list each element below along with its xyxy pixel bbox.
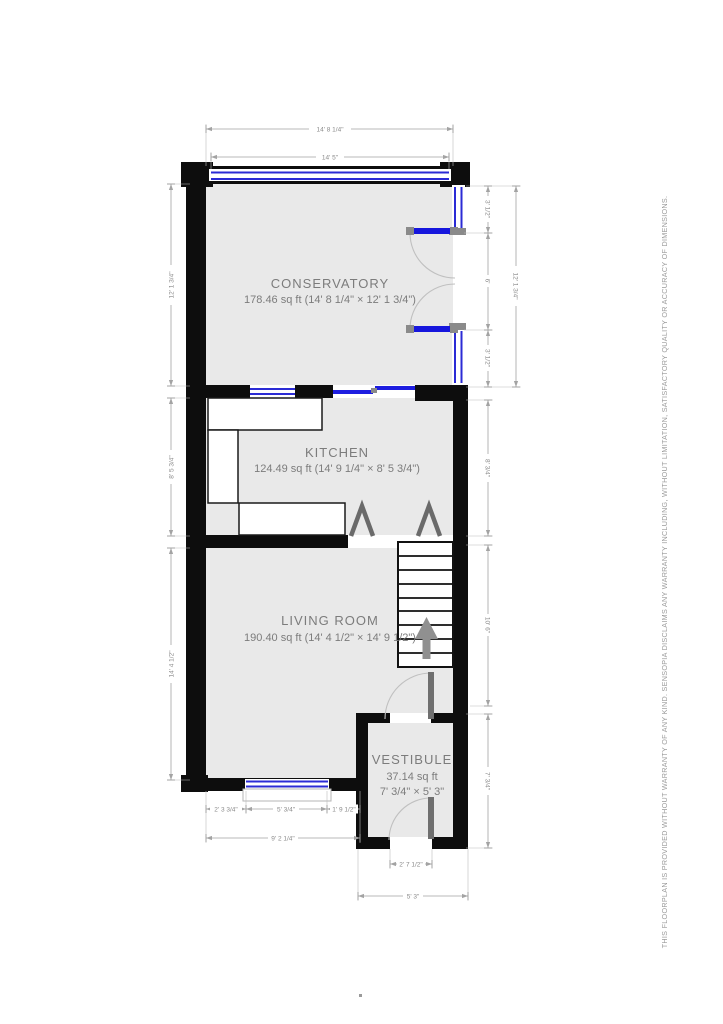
window-right-upper-icon [452,185,465,233]
dim-conservatory-right-upper-label: 3' 1/2" [484,200,491,219]
disclaimer-text: THIS FLOORPLAN IS PROVIDED WITHOUT WARRA… [660,196,669,949]
sliding-door-panel-left [333,390,373,394]
conservatory-area: 178.46 sq ft (14' 8 1/4" × 12' 1 3/4") [244,294,416,306]
counter-top [208,398,322,430]
dim-bottom-overall: 9' 2 1/4" [268,834,298,843]
dim-conservatory-right-overall-label: 12' 1 3/4" [512,272,519,300]
wall-vestibule-top-right [431,713,468,723]
dim-conservatory-left-label: 12' 1 3/4" [168,271,175,299]
window-right-lower-icon [452,328,465,385]
door-hinge-upper [450,227,458,235]
door-end-upper [406,227,414,235]
dim-kitchen-left-label: 8' 5 3/4" [168,455,175,479]
dim-conservatory-right-overall: 12' 1 3/4" [511,266,521,306]
wall-vestibule-left [356,713,368,849]
living-room-area: 190.40 sq ft (14' 4 1/2" × 14' 9 1/2") [244,632,416,644]
dim-bottom-right-seg-label: 1' 9 1/2" [332,806,356,813]
door-leaf-upper [410,228,455,234]
dim-top-overall: 14' 8 1/4" [309,124,351,134]
wall-left [186,166,206,791]
staircase [398,542,453,667]
floorplan-drawing: 14' 8 1/4" 14' 5" 2' 3 3/4" 5' 3/4" 1' 9… [0,0,723,1024]
dim-top-window-label: 14' 5" [322,154,339,161]
dim-vestibule-right-label: 7' 3/4" [484,772,491,791]
conservatory-name: CONSERVATORY [271,276,389,291]
counter-left [208,430,238,503]
dim-living-left: 14' 4 1/2" [166,645,176,683]
door-end-lower [406,325,414,333]
sliding-door-panel-right [375,386,415,390]
floorplan-page: 14' 8 1/4" 14' 5" 2' 3 3/4" 5' 3/4" 1' 9… [0,0,723,1024]
wall-conservatory-kitchen-a [186,385,250,398]
kitchen-name: KITCHEN [305,445,369,460]
dim-conservatory-right-lower-label: 3' 1/2" [484,349,491,368]
counter-bottom [239,503,345,535]
page-dot [359,994,362,997]
window-kitchen-icon [250,386,295,397]
door-leaf-lower [410,326,455,332]
wall-conservatory-kitchen-b [295,385,333,398]
dim-vestibule-right: 7' 3/4" [483,767,493,795]
disclaimer-container: THIS FLOORPLAN IS PROVIDED WITHOUT WARRA… [660,196,669,949]
wall-right [453,385,468,849]
sliding-door-icon [333,385,415,398]
dim-conservatory-right-upper: 3' 1/2" [483,196,493,222]
wall-corner-bottom-left [181,775,208,792]
sliding-door-overlap [371,388,377,393]
dim-front-door-label: 2' 7 1/2" [399,861,423,868]
living-door-leaf [428,672,434,719]
wall-vestibule-bottom-left [356,837,390,849]
dim-conservatory-right-door: 6' [483,275,493,287]
dim-bottom-overall-label: 9' 2 1/4" [271,835,295,842]
window-living-sill [243,789,331,801]
dim-bottom-left-seg: 2' 3 3/4" [210,805,242,814]
dim-kitchen-right-label: 8' 3/4" [484,459,491,478]
dim-top-overall-label: 14' 8 1/4" [316,126,344,133]
dim-kitchen-right: 8' 3/4" [483,454,493,482]
dim-living-left-label: 14' 4 1/2" [168,650,175,678]
wall-corner-top-left [181,162,213,187]
kitchen-area: 124.49 sq ft (14' 9 1/4" × 8' 5 3/4") [254,463,420,475]
dim-bottom-window-seg: 5' 3/4" [273,805,299,814]
dim-conservatory-right-door-label: 6' [484,279,491,284]
dim-vestibule-width: 5' 3" [403,892,423,901]
wall-kitchen-living [186,535,348,548]
door-hinge-lower [450,325,458,333]
living-room-name: LIVING ROOM [281,613,379,628]
dim-vestibule-width-label: 5' 3" [407,893,420,900]
dim-conservatory-left: 12' 1 3/4" [166,265,176,305]
vestibule-size: 7' 3/4" × 5' 3" [380,786,444,798]
dim-kitchen-left: 8' 5 3/4" [166,450,176,484]
dim-stairs-right-label: 10' 6" [484,617,491,634]
dim-stairs-right: 10' 6" [483,614,493,636]
dim-front-door: 2' 7 1/2" [397,860,425,869]
vestibule-name: VESTIBULE [372,752,453,767]
dim-conservatory-right-lower: 3' 1/2" [483,345,493,371]
dim-top-window: 14' 5" [316,152,344,162]
dim-bottom-left-seg-label: 2' 3 3/4" [214,806,238,813]
wall-vestibule-bottom-right [432,837,468,849]
vestibule-area: 37.14 sq ft [386,771,437,783]
dim-bottom-right-seg: 1' 9 1/2" [330,805,358,814]
dim-bottom-window-seg-label: 5' 3/4" [277,806,296,813]
front-door-leaf [428,797,434,839]
